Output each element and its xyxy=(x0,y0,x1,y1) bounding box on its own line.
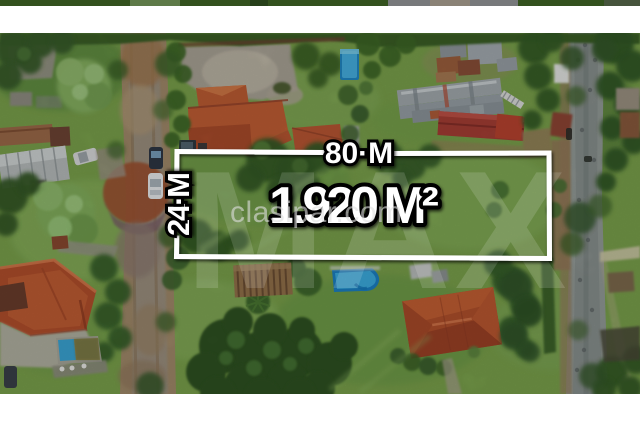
svg-text:clasipar.com: clasipar.com xyxy=(230,196,402,229)
svg-text:80·M: 80·M xyxy=(325,137,393,170)
svg-text:24·M: 24·M xyxy=(161,172,196,236)
